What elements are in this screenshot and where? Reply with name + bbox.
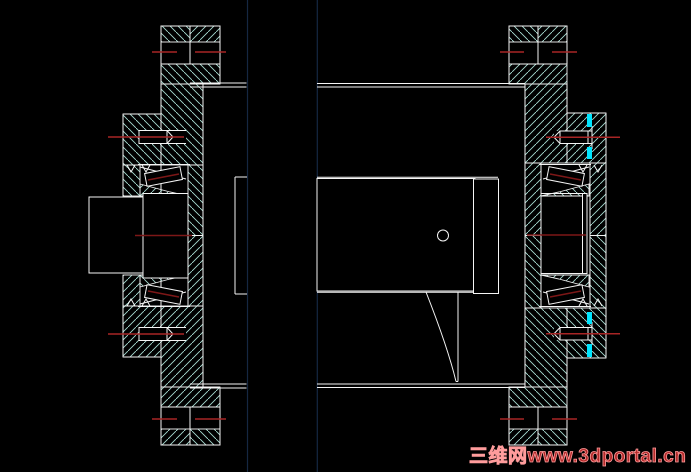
stud-left <box>108 131 186 144</box>
web-profile <box>426 292 458 382</box>
watermark-text: 三维网www.3dportal.cn <box>469 444 686 467</box>
cad-drawing-canvas: 三维网www.3dportal.cn <box>0 0 691 472</box>
mating-face-block <box>235 177 247 294</box>
cad-viewport: 三维网www.3dportal.cn <box>0 0 691 472</box>
drum-silhouette-lines <box>248 0 318 472</box>
bearing-right <box>539 165 591 197</box>
bearing-left <box>138 165 190 197</box>
center-hub-and-collar <box>317 177 499 381</box>
highlight-tick <box>587 147 592 159</box>
shaft-assembly <box>89 194 192 279</box>
highlight-tick <box>587 114 592 127</box>
